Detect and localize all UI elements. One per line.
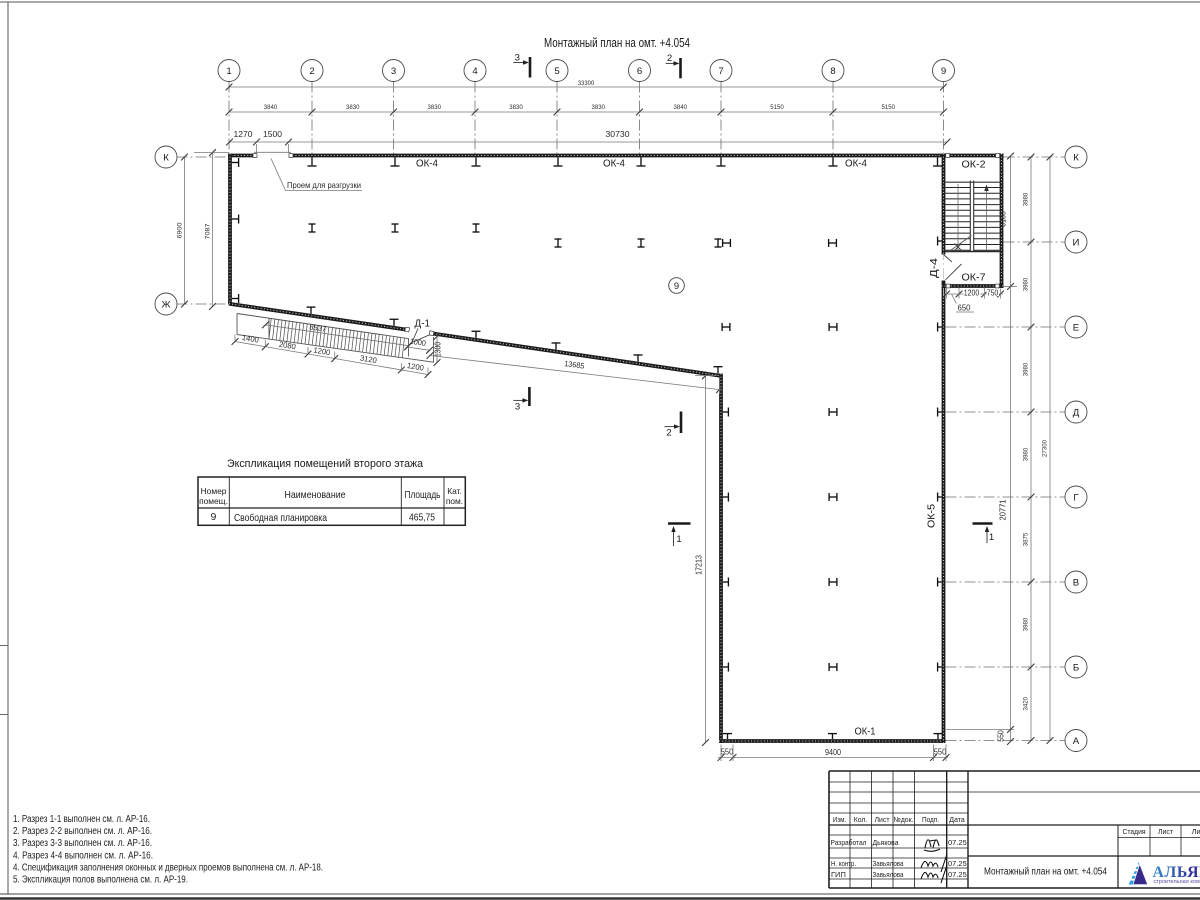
svg-text:пом.: пом. [446, 496, 463, 506]
svg-text:27300: 27300 [1042, 440, 1049, 457]
svg-text:20771: 20771 [999, 500, 1008, 521]
svg-text:4. Разрез 4-4 выполнен см. л.: 4. Разрез 4-4 выполнен см. л. АР-16. [13, 850, 153, 861]
svg-text:Изм.: Изм. [833, 815, 847, 824]
svg-text:07.25: 07.25 [948, 859, 967, 868]
svg-text:3840: 3840 [264, 104, 278, 111]
svg-text:3: 3 [515, 53, 520, 64]
svg-text:1: 1 [676, 534, 681, 545]
svg-text:1500: 1500 [263, 130, 283, 139]
svg-text:Лист: Лист [1158, 827, 1174, 836]
svg-text:ОК-4: ОК-4 [416, 158, 438, 169]
svg-text:6900: 6900 [177, 222, 184, 238]
svg-text:33300: 33300 [578, 80, 595, 87]
svg-text:3980: 3980 [1023, 362, 1030, 376]
svg-text:Д: Д [1073, 407, 1080, 418]
svg-text:550: 550 [934, 748, 947, 757]
svg-text:650: 650 [958, 304, 972, 313]
svg-text:1200: 1200 [964, 288, 980, 297]
svg-text:3980: 3980 [1023, 192, 1030, 206]
svg-text:750: 750 [987, 288, 999, 297]
svg-text:Кат.: Кат. [447, 486, 462, 496]
svg-text:9: 9 [941, 66, 946, 77]
svg-text:ОК-5: ОК-5 [927, 503, 938, 528]
svg-text:Разработал: Разработал [831, 838, 867, 847]
svg-text:ОК-4: ОК-4 [603, 158, 625, 169]
svg-text:3830: 3830 [428, 104, 442, 111]
svg-text:3830: 3830 [346, 104, 360, 111]
svg-text:Н. контр.: Н. контр. [831, 859, 856, 868]
svg-text:8: 8 [830, 66, 835, 77]
svg-text:А: А [1073, 736, 1080, 747]
svg-text:Дата: Дата [949, 815, 965, 824]
svg-text:5150: 5150 [770, 104, 784, 111]
svg-text:Лист: Лист [875, 815, 891, 824]
svg-text:помещ.: помещ. [199, 496, 228, 506]
svg-text:4. Спецификация заполнения око: 4. Спецификация заполнения оконных и две… [13, 862, 323, 873]
svg-text:3875: 3875 [1023, 532, 1030, 546]
svg-text:3: 3 [391, 66, 396, 77]
svg-text:Экспликация помещений второго: Экспликация помещений второго этажа [227, 458, 424, 470]
svg-text:7: 7 [718, 66, 723, 77]
svg-text:К: К [163, 152, 169, 163]
svg-text:465,75: 465,75 [409, 512, 435, 523]
svg-text:ОК-1: ОК-1 [855, 727, 876, 738]
svg-text:Кол.: Кол. [854, 815, 868, 824]
svg-text:07.25: 07.25 [948, 838, 967, 847]
svg-text:4: 4 [472, 66, 478, 77]
svg-text:3980: 3980 [1023, 617, 1030, 631]
svg-text:Номер: Номер [201, 486, 227, 496]
svg-text:3: 3 [515, 402, 520, 413]
svg-text:ОК-2: ОК-2 [962, 159, 986, 170]
svg-text:3980: 3980 [1023, 447, 1030, 461]
svg-text:Д-1: Д-1 [415, 319, 431, 330]
svg-text:3980: 3980 [1023, 277, 1030, 291]
svg-text:5150: 5150 [882, 104, 896, 111]
svg-text:5: 5 [554, 66, 559, 77]
svg-text:Е: Е [1073, 322, 1079, 333]
svg-text:3840: 3840 [674, 104, 688, 111]
svg-text:Подп.: Подп. [922, 815, 939, 824]
svg-text:И: И [1073, 237, 1080, 248]
svg-text:Стадия: Стадия [1123, 827, 1146, 836]
svg-text:Завьялова: Завьялова [873, 870, 905, 879]
svg-text:Завьялова: Завьялова [873, 859, 905, 868]
svg-text:Г: Г [1073, 492, 1079, 503]
svg-text:07.25: 07.25 [948, 870, 967, 879]
svg-text:2: 2 [666, 428, 671, 439]
svg-text:1: 1 [989, 532, 994, 543]
svg-text:Площадь: Площадь [405, 490, 441, 501]
svg-text:Лис: Лис [1192, 827, 1200, 836]
svg-text:К: К [1073, 152, 1079, 163]
svg-text:1300: 1300 [434, 341, 443, 357]
svg-text:Монтажный план на омт. +4.054: Монтажный план на омт. +4.054 [544, 35, 690, 50]
svg-text:Монтажный план на омт. +4.054: Монтажный план на омт. +4.054 [984, 867, 1107, 878]
svg-text:30730: 30730 [606, 130, 631, 139]
svg-text:6: 6 [637, 66, 642, 77]
svg-text:Б: Б [1073, 662, 1079, 673]
svg-text:2. Разрез 2-2 выполнен см. л.: 2. Разрез 2-2 выполнен см. л. АР-16. [13, 826, 152, 837]
svg-text:5. Экспликация полов выполнена: 5. Экспликация полов выполнена см. л. АР… [13, 875, 188, 886]
svg-text:Проем для разгрузки: Проем для разгрузки [287, 181, 361, 190]
svg-text:Ж: Ж [162, 299, 171, 310]
svg-text:17213: 17213 [695, 555, 704, 575]
svg-text:1270: 1270 [234, 130, 254, 139]
svg-text:В: В [1073, 577, 1079, 588]
svg-text:9: 9 [674, 280, 679, 291]
svg-text:3420: 3420 [1023, 697, 1030, 711]
svg-text:7087: 7087 [205, 223, 212, 239]
svg-text:550: 550 [721, 748, 734, 757]
svg-text:Наименование: Наименование [285, 490, 346, 501]
svg-text:1: 1 [226, 66, 231, 77]
svg-text:2: 2 [309, 66, 314, 77]
svg-text:3830: 3830 [509, 104, 523, 111]
svg-text:ОК-7: ОК-7 [962, 273, 986, 284]
svg-text:1. Разрез 1-1 выполнен см. л.: 1. Разрез 1-1 выполнен см. л. АР-16. [13, 814, 150, 825]
svg-text:ГИП: ГИП [831, 870, 846, 879]
svg-text:3. Разрез 3-3 выполнен см. л.: 3. Разрез 3-3 выполнен см. л. АР-16. [13, 838, 152, 849]
svg-text:3830: 3830 [592, 104, 606, 111]
svg-text:9400: 9400 [825, 748, 842, 757]
svg-text:№док.: №док. [894, 815, 914, 824]
svg-text:9: 9 [211, 512, 217, 523]
svg-text:строительная компания: строительная компания [1154, 879, 1200, 885]
svg-text:Дьякова: Дьякова [873, 838, 900, 847]
svg-text:Д-4: Д-4 [929, 257, 940, 278]
svg-text:ОК-4: ОК-4 [845, 158, 867, 169]
svg-text:Свободная планировка: Свободная планировка [234, 512, 327, 524]
svg-text:550: 550 [997, 730, 1006, 742]
svg-text:2: 2 [667, 53, 672, 64]
